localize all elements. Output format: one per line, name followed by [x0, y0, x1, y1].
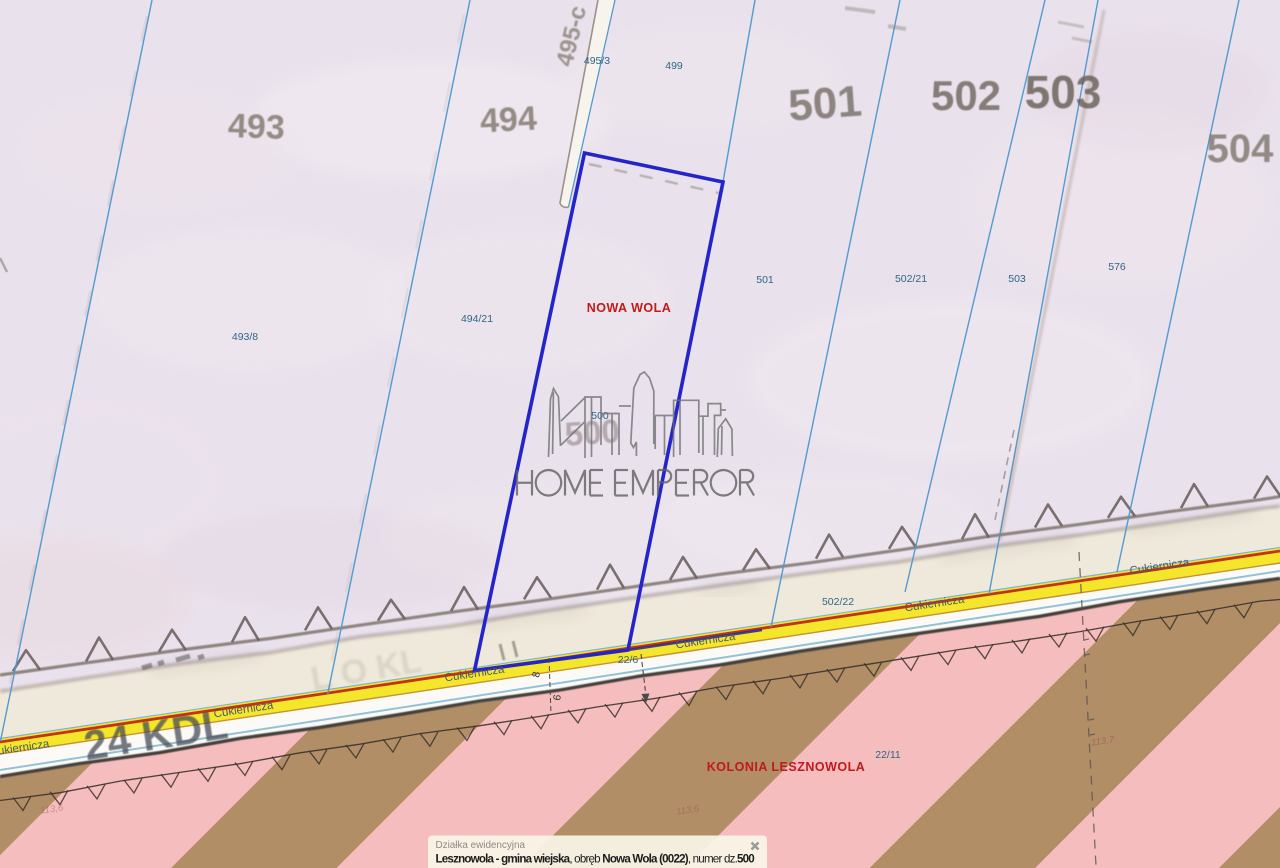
svg-text:22/6: 22/6: [618, 654, 639, 666]
svg-text:Lesznowola - gmina wiejska, ob: Lesznowola - gmina wiejska, obręb Nowa W…: [436, 853, 755, 866]
svg-text:502: 502: [931, 72, 1001, 119]
svg-text:501: 501: [756, 274, 774, 286]
svg-text:502/21: 502/21: [895, 273, 927, 285]
svg-text:576: 576: [1108, 261, 1126, 273]
svg-text:503: 503: [1025, 66, 1102, 118]
svg-text:504: 504: [1207, 127, 1274, 171]
svg-text:503: 503: [1008, 273, 1026, 285]
svg-text:493: 493: [227, 107, 285, 147]
svg-text:NOWA WOLA: NOWA WOLA: [587, 301, 672, 315]
svg-text:KOLONIA LESZNOWOLA: KOLONIA LESZNOWOLA: [707, 760, 866, 774]
svg-text:500: 500: [591, 410, 609, 422]
svg-text:Działka ewidencyjna: Działka ewidencyjna: [436, 840, 526, 851]
svg-text:495/3: 495/3: [584, 55, 610, 67]
svg-text:494: 494: [479, 100, 538, 141]
svg-text:493/8: 493/8: [232, 331, 258, 343]
svg-text:499: 499: [665, 60, 683, 72]
svg-text:502/22: 502/22: [822, 596, 854, 608]
svg-text:494/21: 494/21: [461, 313, 493, 325]
svg-text:22/11: 22/11: [875, 749, 901, 761]
svg-text:501: 501: [787, 77, 864, 131]
